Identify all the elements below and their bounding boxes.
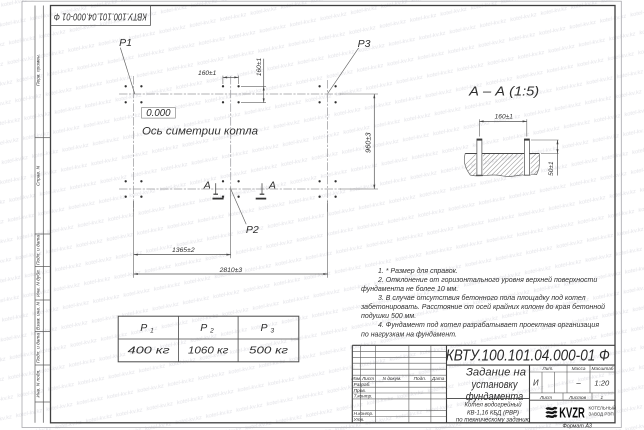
svg-text:N докум.: N докум. [383,376,402,381]
svg-text:фундамента: фундамента [466,391,524,403]
svg-text:Ось симетрии котла: Ось симетрии котла [142,126,258,138]
svg-text:P2: P2 [246,224,259,236]
svg-text:подушки 500 мм.: подушки 500 мм. [361,312,416,320]
svg-text:1365±2: 1365±2 [172,247,195,254]
svg-text:4. Фундамент под котел разраб: 4. Фундамент под котел разрабатывает про… [378,321,599,329]
svg-text:Пров.: Пров. [354,388,366,393]
svg-text:Лит.: Лит. [542,366,554,371]
svg-text:по нагрузкам на фундамент.: по нагрузкам на фундамент. [361,330,457,338]
svg-text:Дата: Дата [431,376,445,381]
svg-text:960±3: 960±3 [364,132,373,153]
svg-text:Лист: Лист [539,395,552,400]
svg-text:400 кг: 400 кг [128,345,170,357]
svg-text:А: А [203,179,211,191]
svg-text:КВТУ.100.101.04.000-01 Ф: КВТУ.100.101.04.000-01 Ф [446,348,610,365]
svg-text:Подп.: Подп. [414,376,426,381]
svg-text:по техническому заданию: по техническому заданию [456,418,531,424]
svg-text:И: И [533,378,539,387]
svg-text:2810±3: 2810±3 [219,267,243,274]
svg-text:Задание на: Задание на [466,366,526,378]
svg-text:P1: P1 [119,37,132,49]
svg-text:Листов: Листов [568,395,587,400]
svg-text:ЗАВОД РЭП: ЗАВОД РЭП [589,412,614,417]
svg-text:1: 1 [600,395,603,400]
svg-text:А – А (1:5): А – А (1:5) [468,85,539,99]
svg-text:KVZR: KVZR [559,405,585,422]
svg-text:Масса: Масса [572,366,586,371]
svg-text:1. * Размер для справок.: 1. * Размер для справок. [378,267,458,275]
svg-text:А: А [268,179,276,191]
svg-text:КВ-1,16 КБД (РВР): КВ-1,16 КБД (РВР) [467,410,519,416]
svg-text:Разраб.: Разраб. [354,382,371,387]
svg-text:2. Отклонение от горизонтальн: 2. Отклонение от горизонтального уровня … [377,276,597,284]
svg-text:3. В случае отсутствия бетонн: 3. В случае отсутствия бетонного пола пл… [378,294,586,302]
svg-text:500 кг: 500 кг [249,345,288,357]
svg-text:1:20: 1:20 [594,378,610,387]
svg-text:Утв.: Утв. [354,417,365,422]
svg-text:160±1: 160±1 [198,70,217,77]
svg-text:КВТУ.100.101.04.000-01 Ф: КВТУ.100.101.04.000-01 Ф [54,10,147,22]
svg-text:0.000: 0.000 [146,108,171,119]
svg-text:фундамента не более 10 мм.: фундамента не более 10 мм. [361,285,458,293]
svg-text:Т.контр.: Т.контр. [354,394,373,399]
svg-text:P3: P3 [358,38,371,50]
svg-text:160±1: 160±1 [495,113,514,120]
svg-text:Подп. и дата: Подп. и дата [35,333,41,363]
svg-text:Подп. и дата: Подп. и дата [35,235,41,265]
svg-text:КОТЕЛЬНЫЙ: КОТЕЛЬНЫЙ [589,406,617,411]
svg-text:Справ. N: Справ. N [35,165,41,186]
svg-text:Инв. N дубл.: Инв. N дубл. [35,269,41,297]
svg-text:Котел водогрейный: Котел водогрейный [464,401,522,408]
svg-text:Формат А3: Формат А3 [562,423,592,429]
svg-text:Перв. примен.: Перв. примен. [35,54,41,86]
svg-text:Н.контр.: Н.контр. [354,411,374,416]
svg-text:Изм.: Изм. [351,376,361,381]
svg-text:забетонировать. Расстояние от: забетонировать. Расстояние от осей крайн… [360,303,605,311]
svg-text:установку: установку [471,379,519,391]
svg-text:50±1: 50±1 [548,161,555,176]
svg-text:Инв. N подл.: Инв. N подл. [35,369,41,397]
svg-text:Лист: Лист [361,376,374,381]
svg-text:1060 кг: 1060 кг [188,345,229,357]
svg-text:–: – [575,378,581,387]
svg-text:160±1: 160±1 [256,58,263,77]
svg-text:Взам. инв. N: Взам. инв. N [35,302,41,330]
svg-text:Масштаб: Масштаб [592,366,614,371]
